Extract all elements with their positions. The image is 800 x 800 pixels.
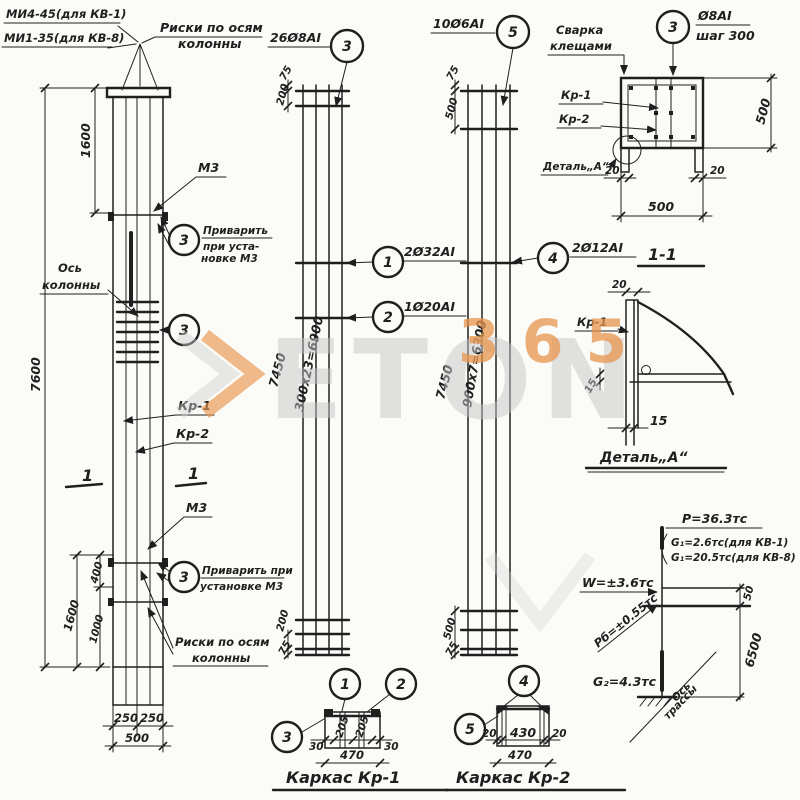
dim-250-left: 250: [114, 711, 138, 725]
position-number: 2: [383, 310, 393, 326]
dim-250-right: 250: [140, 711, 164, 725]
dim-k1-205-right: 205: [353, 714, 371, 739]
dim-k1-30-right: 30: [384, 741, 399, 753]
detail-a-reference-circle: [613, 136, 641, 164]
cage2-bars-callout: 10Ø6АI: [433, 16, 484, 31]
dim-k2-20-right: 20: [552, 728, 567, 740]
kr2-label-section: Кр-2: [559, 112, 589, 126]
karkas-kr1-section: 1 2 3 30 205 205 30 470 Каркас Кр-1: [272, 669, 448, 790]
dim-cage1-bottom-200: 200: [274, 608, 291, 632]
bar1-callout: 2Ø32АI: [404, 244, 455, 259]
detail-a-view: 20 Кр-1 15 15 Деталь„А“: [575, 279, 733, 472]
detail-a-reference-label: Деталь„А“: [542, 161, 609, 173]
dim-cage1-bottom-75: 75: [276, 639, 294, 658]
position-number: 3: [282, 730, 292, 746]
dim-column-top-1600: 1600: [78, 123, 93, 158]
dim-column-400: 400: [88, 560, 106, 585]
section-1-1-view: Сварка клещами 3 Ø8АI шаг 300 Кр-1 Кр-2 …: [541, 8, 777, 266]
kr1-label-column: Кр-1: [178, 398, 211, 413]
dim-k1-205-left: 205: [333, 714, 351, 739]
drawing-canvas: МИ4-45(для КВ-1) МИ1-35(для КВ-8) Риски …: [0, 0, 800, 800]
dim-cage2-total-7450: 7450: [432, 363, 456, 401]
watermark-number: 365: [458, 307, 649, 377]
anchor-label-kv8: МИ1-35(для КВ-8): [4, 31, 124, 45]
dim-s11-500-width: 500: [648, 199, 674, 214]
load-w-label: W=±3.6тс: [582, 575, 654, 590]
dim-k2-430: 430: [509, 725, 536, 740]
cage1-bars-callout: 26Ø8АI: [270, 30, 321, 45]
section-1-1-title: 1-1: [648, 245, 677, 264]
m3-label-lower: М3: [186, 500, 207, 515]
load-pb-label: Рб=±0.55тс: [591, 591, 660, 651]
dim-column-bottom-1600: 1600: [60, 598, 82, 633]
dim-load-50: 50: [741, 585, 756, 602]
dim-cage2-top-75: 75: [444, 64, 462, 83]
section-mark-1-left: 1: [82, 466, 93, 485]
dim-detail-20: 20: [612, 279, 627, 291]
weld-note-upper-2: при уста-: [203, 241, 259, 253]
dim-k2-470: 470: [507, 748, 532, 762]
position-number: 3: [179, 233, 189, 249]
anchor-label-kv1: МИ4-45(для КВ-1): [6, 7, 126, 21]
position-number: 1: [383, 255, 393, 271]
dim-cage1-run: 300х23=6900: [291, 315, 326, 413]
karkas-kr1-title: Каркас Кр-1: [286, 768, 400, 787]
position-number: 4: [547, 251, 558, 267]
position-number: 3: [342, 39, 352, 55]
axis-marks-label-top-2: колонны: [178, 36, 241, 51]
dim-cage2-run: 900х7=6300: [459, 319, 489, 409]
bar4-callout: 2Ø12АI: [572, 240, 623, 255]
cage-kr1-elevation: 75 200 7450 300х23=6900 200 75 26Ø8АI 3 …: [265, 30, 466, 659]
position-number: 4: [518, 674, 529, 690]
weld-note-lower-1: Приварить при: [202, 565, 293, 577]
weld-note-upper-3: новке М3: [201, 253, 258, 265]
axis-marks-label-top-1: Риски по осям: [160, 20, 263, 35]
tie-spec-step: шаг 300: [696, 28, 755, 43]
column-elevation-view: МИ4-45(для КВ-1) МИ1-35(для КВ-8) Риски …: [2, 7, 293, 752]
position-number: 3: [179, 323, 189, 339]
dim-cage1-top-75: 75: [277, 64, 295, 83]
dim-detail-15-left: 15: [582, 377, 600, 396]
load-g1-kv8-label: G₁=20.5тс(для КВ-8): [671, 552, 796, 564]
dim-column-1000: 1000: [87, 613, 106, 644]
weld-note-lower-2: установке М3: [200, 581, 283, 593]
m3-label-upper: М3: [198, 160, 219, 175]
position-number: 1: [340, 677, 350, 693]
axis-marks-label-bottom-2: колонны: [192, 651, 251, 665]
position-number: 5: [508, 25, 518, 41]
dim-detail-15-bottom: 15: [650, 413, 668, 428]
column-axis-label-1: Ось: [58, 261, 82, 275]
column-axis-label-2: колонны: [42, 278, 101, 292]
cage-kr2-elevation: 75 500 7450 900х7=6300 500 75 10Ø6АI 5 4…: [431, 16, 636, 659]
kr1-label-section: Кр-1: [561, 88, 591, 102]
karkas-kr2-title: Каркас Кр-2: [456, 768, 570, 787]
dim-k1-470: 470: [339, 748, 364, 762]
detail-rebar-circle: [642, 366, 651, 375]
load-p-label: Р=36.3тс: [682, 511, 748, 526]
svarka-label-2: клещами: [550, 39, 612, 53]
position-number: 3: [179, 570, 189, 586]
axis-marks-label-bottom-1: Риски по осям: [175, 635, 270, 649]
dim-cage2-top-500: 500: [443, 96, 460, 120]
tie-spec-callout: Ø8АI: [697, 8, 732, 23]
position-number: 3: [668, 20, 678, 36]
dim-cage2-bottom-500: 500: [441, 616, 458, 640]
dim-column-total-7600: 7600: [28, 357, 43, 392]
kr1-label-detail: Кр-1: [577, 315, 607, 329]
load-scheme-view: Р=36.3тс G₁=2.6тс(для КВ-1) G₁=20.5тс(дл…: [580, 511, 796, 742]
bar2-callout: 1Ø20АI: [404, 299, 455, 314]
dim-500-base: 500: [125, 731, 149, 745]
dim-cage1-top-200: 200: [274, 82, 291, 106]
kr2-label-column: Кр-2: [176, 426, 209, 441]
dim-load-6500: 6500: [741, 631, 765, 669]
drawing-sheet: МИ4-45(для КВ-1) МИ1-35(для КВ-8) Риски …: [0, 0, 800, 800]
dim-s11-20-left: 20: [605, 165, 620, 177]
weld-note-upper-1: Приварить: [203, 225, 268, 237]
dim-cage2-bottom-75: 75: [443, 640, 461, 659]
dim-k1-30-left: 30: [309, 741, 324, 753]
detail-a-title: Деталь„А“: [599, 450, 688, 466]
load-g1-kv1-label: G₁=2.6тс(для КВ-1): [671, 537, 788, 549]
svarka-label-1: Сварка: [556, 23, 604, 37]
watermark-chevron-orange: [205, 335, 255, 413]
dim-s11-20-right: 20: [710, 165, 725, 177]
position-number: 5: [465, 722, 475, 738]
dim-cage1-total-7450: 7450: [265, 351, 289, 389]
position-number: 2: [396, 677, 406, 693]
dim-k2-20-left: 20: [482, 728, 497, 740]
section-mark-1-right: 1: [188, 464, 199, 483]
load-g2-label: G₂=4.3тс: [593, 674, 657, 689]
